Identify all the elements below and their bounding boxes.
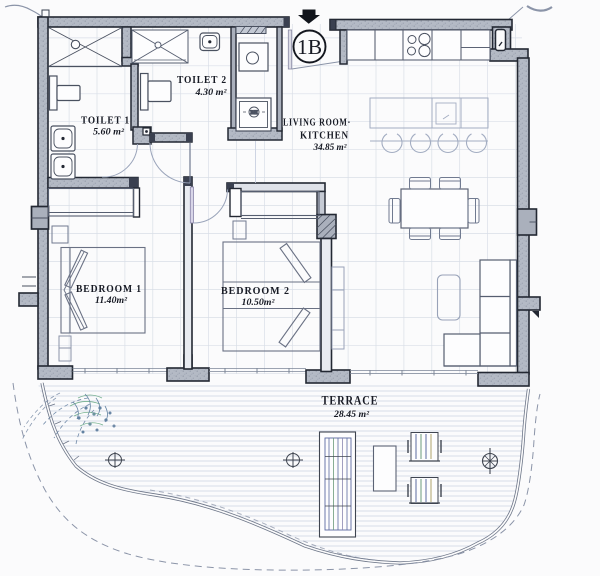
svg-text:1B: 1B <box>297 35 322 59</box>
svg-text:TOILET 1: TOILET 1 <box>81 114 130 126</box>
svg-text:11.40m²: 11.40m² <box>95 295 127 305</box>
svg-text:BEDROOM 2: BEDROOM 2 <box>221 286 290 297</box>
svg-text:TERRACE: TERRACE <box>322 394 379 408</box>
svg-text:BEDROOM 1: BEDROOM 1 <box>76 284 142 295</box>
svg-text:BH: BH <box>250 111 257 116</box>
svg-text:KITCHEN: KITCHEN <box>300 129 349 141</box>
svg-text:LIVING ROOM·: LIVING ROOM· <box>283 116 351 128</box>
svg-text:4.30 m²: 4.30 m² <box>194 87 226 97</box>
svg-text:28.45 m²: 28.45 m² <box>333 409 369 419</box>
svg-text:5.60 m²: 5.60 m² <box>93 126 124 136</box>
svg-text:34.85 m²: 34.85 m² <box>312 142 346 152</box>
svg-text:10.50m²: 10.50m² <box>242 297 275 307</box>
svg-text:TOILET 2: TOILET 2 <box>177 74 227 86</box>
